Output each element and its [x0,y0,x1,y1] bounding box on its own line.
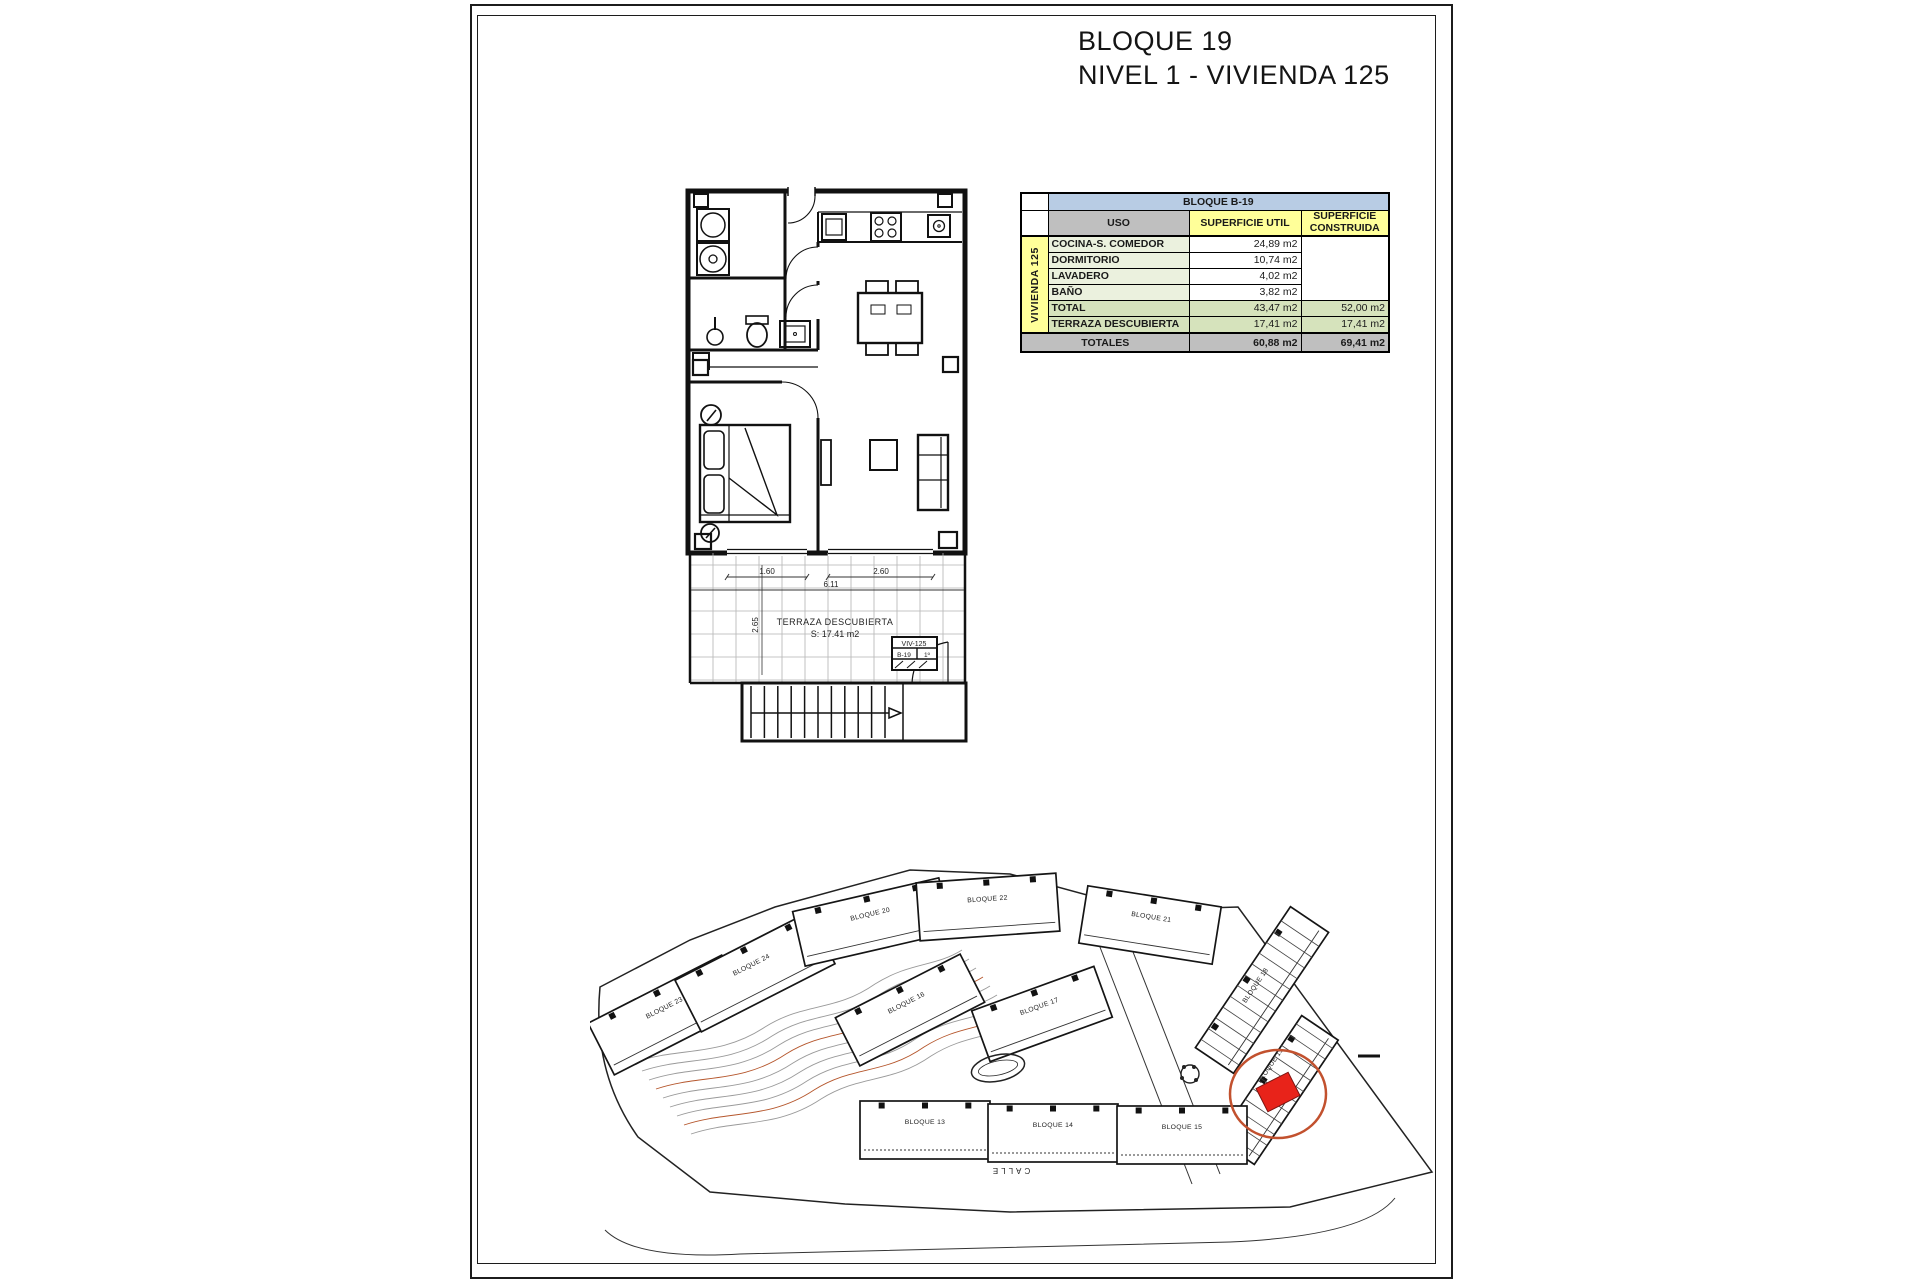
cell-construida: 52,00 m2 [1301,300,1389,316]
unit-tag-box: VIV-125 B-19 1º [892,637,937,670]
title-line-1: BLOQUE 19 [1078,24,1390,58]
dim-left-label: 1.60 [759,567,775,576]
block-core [1179,1108,1185,1114]
col-header-construida: SUPERFICIE CONSTRUIDA [1301,210,1389,236]
terrace-label: TERRAZA DESCUBIERTA [777,617,894,627]
block-core [1195,904,1202,911]
living-room-furniture [821,435,948,510]
stair-steps [751,686,885,738]
street-label: CALLE [990,1166,1030,1175]
block-outline [1079,886,1221,964]
cell-uso: BAÑO [1048,284,1189,300]
stair-direction-arrow [889,708,901,718]
bedroom-furniture [700,405,790,542]
table-row-totales: TOTALES 60,88 m2 69,41 m2 [1021,333,1389,352]
siteplan-block-label: BLOQUE 13 [905,1119,945,1126]
areas-table: BLOQUE B-19 USO SUPERFICIE UTIL SUPERFIC… [1020,192,1390,353]
cell-uso: COCINA-S. COMEDOR [1048,236,1189,252]
block-core [1136,1108,1142,1114]
block-core [983,879,989,885]
page-title: BLOQUE 19 NIVEL 1 - VIVIENDA 125 [1078,24,1390,92]
cell-construida: 17,41 m2 [1301,316,1389,333]
title-line-2: NIVEL 1 - VIVIENDA 125 [1078,58,1390,92]
siteplan-block-label: BLOQUE 14 [1033,1122,1073,1129]
siteplan-block: BLOQUE 13 [860,1101,990,1159]
cell-totales-util: 60,88 m2 [1189,333,1301,352]
floorplan-drawing: 1.60 2.60 6.11 2.65 TERRAZA DESCUBIERTA … [685,185,975,760]
vivienda-label: VIVIENDA 125 [1029,247,1041,323]
dim-right-label: 2.60 [873,567,889,576]
plaza [1180,1065,1199,1083]
unit-tag-level: 1º [924,652,931,659]
siteplan-block-label: BLOQUE 15 [1162,1124,1202,1131]
bathroom-fixtures [707,316,810,347]
table-row-terraza: TERRAZA DESCUBIERTA 17,41 m2 17,41 m2 [1021,316,1389,333]
table-row-col-headers: USO SUPERFICIE UTIL SUPERFICIE CONSTRUID… [1021,210,1389,236]
block-core [937,883,943,889]
block-core [1106,890,1113,897]
block-header-cell: BLOQUE B-19 [1048,193,1389,210]
siteplan-block: BLOQUE 21 [1079,886,1221,964]
unit-tag-block: B-19 [897,652,911,659]
dining-table [858,281,922,355]
table-row-block-header: BLOQUE B-19 [1021,193,1389,210]
cell-blank [1021,210,1048,236]
cell-totales-construida: 69,41 m2 [1301,333,1389,352]
cell-blank [1021,193,1048,210]
cell-util: 24,89 m2 [1189,236,1301,252]
pool [969,1050,1027,1087]
terrace-area-label: S: 17.41 m2 [811,629,860,639]
cell-util: 17,41 m2 [1189,316,1301,333]
dim-vertical-label: 2.65 [751,617,760,633]
siteplan-block: BLOQUE 17 [972,966,1113,1061]
cell-uso: DORMITORIO [1048,252,1189,268]
plan-sheet: BLOQUE 19 NIVEL 1 - VIVIENDA 125 BLOQUE … [0,0,1920,1280]
unit-tag-line1: VIV-125 [902,641,927,648]
cell-construida-merged [1301,236,1389,300]
cell-uso: TOTAL [1048,300,1189,316]
cell-util: 43,47 m2 [1189,300,1301,316]
table-row-total: TOTAL 43,47 m2 52,00 m2 [1021,300,1389,316]
block-core [1030,876,1036,882]
block-core [922,1103,928,1109]
block-core [1007,1106,1013,1112]
block-core [1050,1106,1056,1112]
kitchen-appliances [822,213,950,241]
siteplan-drawing: BLOQUE 23BLOQUE 24BLOQUE 20BLOQUE 22BLOQ… [590,862,1456,1280]
block-core [1150,897,1157,904]
block-outline [972,966,1113,1061]
block-core [1222,1108,1228,1114]
vivienda-label-cell: VIVIENDA 125 [1021,236,1048,333]
cell-totales-label: TOTALES [1021,333,1189,352]
cell-util: 4,02 m2 [1189,268,1301,284]
table-row-cocina: VIVIENDA 125 COCINA-S. COMEDOR 24,89 m2 [1021,236,1389,252]
siteplan-block: BLOQUE 15 [1117,1106,1247,1164]
block-core [965,1103,971,1109]
laundry-appliances [697,209,729,275]
block-core [1093,1106,1099,1112]
block-core [879,1103,885,1109]
siteplan-block: BLOQUE 22 [916,873,1060,941]
siteplan-block: BLOQUE 14 [988,1104,1118,1162]
cell-util: 3,82 m2 [1189,284,1301,300]
cell-util: 10,74 m2 [1189,252,1301,268]
siteplan-block: BLOQUE 16 [835,954,984,1066]
cell-uso: TERRAZA DESCUBIERTA [1048,316,1189,333]
dim-total-label: 6.11 [824,580,840,589]
col-header-uso: USO [1048,210,1189,236]
col-header-util: SUPERFICIE UTIL [1189,210,1301,236]
cell-uso: LAVADERO [1048,268,1189,284]
